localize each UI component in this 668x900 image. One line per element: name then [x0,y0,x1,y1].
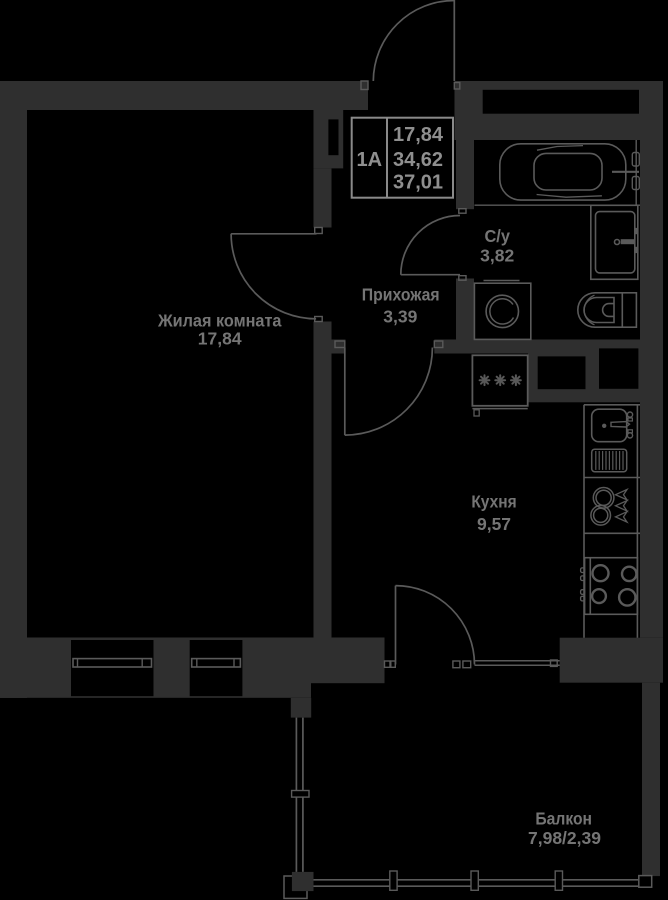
svg-text:Прихожая: Прихожая [362,284,440,304]
svg-text:Жилая комната: Жилая комната [157,310,282,330]
svg-text:34,62: 34,62 [393,149,443,171]
svg-text:3,39: 3,39 [383,306,417,326]
svg-text:Балкон: Балкон [535,808,592,828]
svg-text:3,82: 3,82 [480,245,514,265]
svg-text:37,01: 37,01 [393,172,443,194]
svg-text:9,57: 9,57 [477,514,511,534]
svg-text:С/у: С/у [484,226,510,246]
svg-text:1А: 1А [357,149,383,171]
svg-text:17,84: 17,84 [198,328,242,348]
svg-text:17,84: 17,84 [393,124,444,146]
svg-text:Кухня: Кухня [471,492,516,512]
svg-text:7,98/2,39: 7,98/2,39 [528,828,601,848]
